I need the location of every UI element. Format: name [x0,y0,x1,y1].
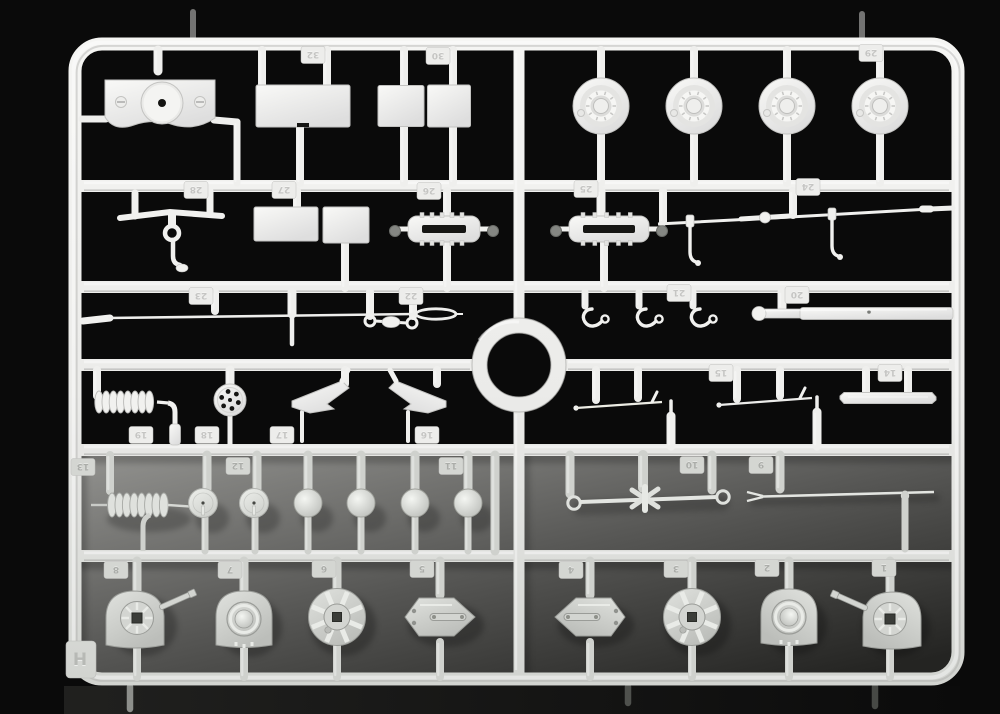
svg-text:7: 7 [227,564,233,574]
svg-text:19: 19 [135,429,148,439]
part-number-tag-30: 3030 [426,48,450,65]
runner-stub [785,131,787,183]
part-number-tag-22: 2222 [399,288,423,305]
runner-stub [568,455,570,494]
part-11-dome-cap [454,489,482,517]
svg-text:28: 28 [190,184,203,194]
part-3-ribbed-hub [664,589,721,646]
runner-stub [359,516,361,551]
runner-stub [691,292,693,306]
runner-stub [213,292,215,311]
runner-stub [641,455,643,488]
svg-text:6: 6 [321,563,327,573]
part-29-road-wheel [573,78,629,134]
part-number-tag-27: 2727 [272,182,296,199]
svg-text:32: 32 [307,49,320,59]
runner-stub [466,516,468,551]
runner-stub [335,642,337,677]
runner-stub [402,50,404,86]
part-number-tag-1: 11 [872,560,896,577]
part-18-drilled-disc [214,384,246,416]
part-14-flat-bar [840,393,936,404]
runner-stub [588,561,590,595]
runner-stub [636,370,638,398]
runner-stub [599,50,601,80]
part-30-flat-panel [378,86,424,127]
runner-stub [780,292,782,308]
runner-stub [156,50,158,71]
part-2-cupola-plate [761,589,817,646]
runner-stub [815,412,817,446]
runner-stub [260,50,262,87]
part-number-tag-16: 1616 [415,427,439,444]
runner-stub [402,126,404,183]
part-number-tag-11: 1111 [439,458,463,475]
runner-stub [205,455,207,489]
part-number-tag-3: 33 [664,561,688,578]
svg-text:18: 18 [201,429,214,439]
part-11-dome-cap [294,489,322,517]
svg-text:23: 23 [195,290,208,300]
runner-stub [359,455,361,490]
runner-stub [583,292,585,306]
runner-stub [710,455,712,490]
part-number-tag-32: 3232 [301,47,325,64]
surface-edge-below-frame [64,686,960,714]
part-number-tag-28: 2828 [184,182,208,199]
runner-stub [735,370,737,399]
svg-text:26: 26 [423,185,436,195]
part-number-tag-17: 1717 [270,427,294,444]
runner-stub [864,370,866,393]
runner-stub [135,561,137,595]
runner-stub [306,455,308,490]
part-32-hull-plate [105,80,215,127]
svg-text:5: 5 [419,563,425,573]
part-number-tag-21: 2121 [667,285,691,302]
runner-stub [438,642,440,677]
svg-text:10: 10 [686,459,699,469]
part-number-tag-29: 2929 [859,45,883,62]
part-number-tag-19: 1919 [129,427,153,444]
runner-stub [343,242,345,288]
runner-stub [451,126,453,183]
part-6-ribbed-hub [309,589,366,646]
part-number-tag-18: 1818 [195,427,219,444]
part-20-cylinder-rod [752,307,953,321]
part-12-pin-disc [240,489,269,518]
runner-stub [602,241,604,288]
part-11-dome-cap [401,489,429,517]
runner-stub [878,131,880,183]
runner-stub [778,370,780,396]
runner-stub [669,416,671,446]
part-11-dome-cap [347,489,375,517]
runner-stub [588,642,590,677]
part-number-tag-9: 99 [749,457,773,474]
runner-stub [413,516,415,551]
runner-stub [298,126,300,183]
runner-stub [435,370,437,384]
runner-stub [438,561,440,595]
runner-stub [325,50,327,87]
svg-text:14: 14 [884,367,897,377]
svg-text:1: 1 [881,562,887,572]
runner-stub [451,50,453,86]
svg-text:25: 25 [580,183,593,193]
part-number-tag-13: 1313 [71,459,95,476]
svg-text:27: 27 [278,184,291,194]
runner-stub [445,241,447,288]
svg-text:4: 4 [568,564,574,574]
runner-stub [661,191,663,222]
runner-stub [787,642,789,677]
part-number-tag-24: 2424 [796,179,820,196]
runner-stub [108,455,110,491]
runner-stub [692,131,694,183]
part-number-tag-20: 2020 [785,287,809,304]
runner-stub [594,370,596,400]
part-number-tag-25: 2525 [574,181,598,198]
runner-stub [445,191,447,217]
sprue-photo: 3232303029292828272726262525242423232222… [0,0,1000,714]
runner-stub [906,370,908,393]
runner-stub [599,131,601,183]
svg-text:17: 17 [276,429,289,439]
runner-stub [493,455,495,551]
part-number-tag-7: 77 [218,562,242,579]
sprue-rail [80,362,474,369]
svg-text:11: 11 [445,460,458,470]
part-30-flat-panel [428,85,471,127]
sprue-artwork: 3232303029292828272726262525242423232222… [0,0,1000,714]
svg-text:2: 2 [764,562,770,572]
part-number-tag-23: 2323 [189,288,213,305]
part-number-tag-26: 2626 [417,183,441,200]
svg-text:12: 12 [232,460,245,470]
part-number-tag-5: 55 [410,561,434,578]
part-12-pin-disc [189,489,218,518]
runner-stub [690,642,692,677]
svg-text:3: 3 [673,563,679,573]
part-number-tag-2: 22 [755,560,779,577]
part-number-tag-6: 66 [312,561,336,578]
svg-text:22: 22 [405,290,418,300]
part-number-tag-15: 1515 [709,365,733,382]
svg-text:21: 21 [673,287,686,297]
runner-stub [466,455,468,490]
svg-text:30: 30 [432,50,445,60]
runner-stub [242,561,244,595]
part-number-tag-8: 88 [104,562,128,579]
runner-stub [203,517,205,551]
svg-text:15: 15 [715,367,728,377]
svg-text:13: 13 [77,461,90,471]
part-27-flat-panel [323,207,369,243]
runner-stub [290,292,292,314]
part-number-tag-12: 1212 [226,458,250,475]
sprue-center-spine [516,50,519,319]
runner-stub [413,455,415,490]
part-7-cupola-plate [216,591,272,648]
svg-text:24: 24 [802,181,815,191]
part-31-flat-panel [256,85,350,127]
runner-stub [791,191,793,215]
runner-stub [368,292,370,316]
part-number-tag-4: 44 [559,562,583,579]
svg-text:20: 20 [791,289,804,299]
runner-stub [637,292,639,306]
runner-stub [778,455,780,489]
runner-stub [255,455,257,489]
svg-text:9: 9 [758,459,764,469]
runner-stub [306,516,308,551]
sprue-letter-pad: HH [66,641,96,678]
part-29-road-wheel [852,78,908,134]
part-29-road-wheel [759,78,815,134]
part-number-tag-14: 1414 [878,365,902,382]
runner-stub [253,517,255,551]
part-number-tag-10: 1010 [680,457,704,474]
part-29-road-wheel [666,78,722,134]
runner-stub [599,191,601,216]
sprue-letter: H [73,650,87,670]
svg-text:8: 8 [113,564,119,574]
runner-stub [785,50,787,80]
runner-stub [692,50,694,80]
svg-text:16: 16 [421,429,434,439]
part-27-flat-panel [254,207,318,241]
runner-stub [235,122,237,183]
sprue-center-spine [516,411,519,673]
svg-text:29: 29 [865,47,878,57]
